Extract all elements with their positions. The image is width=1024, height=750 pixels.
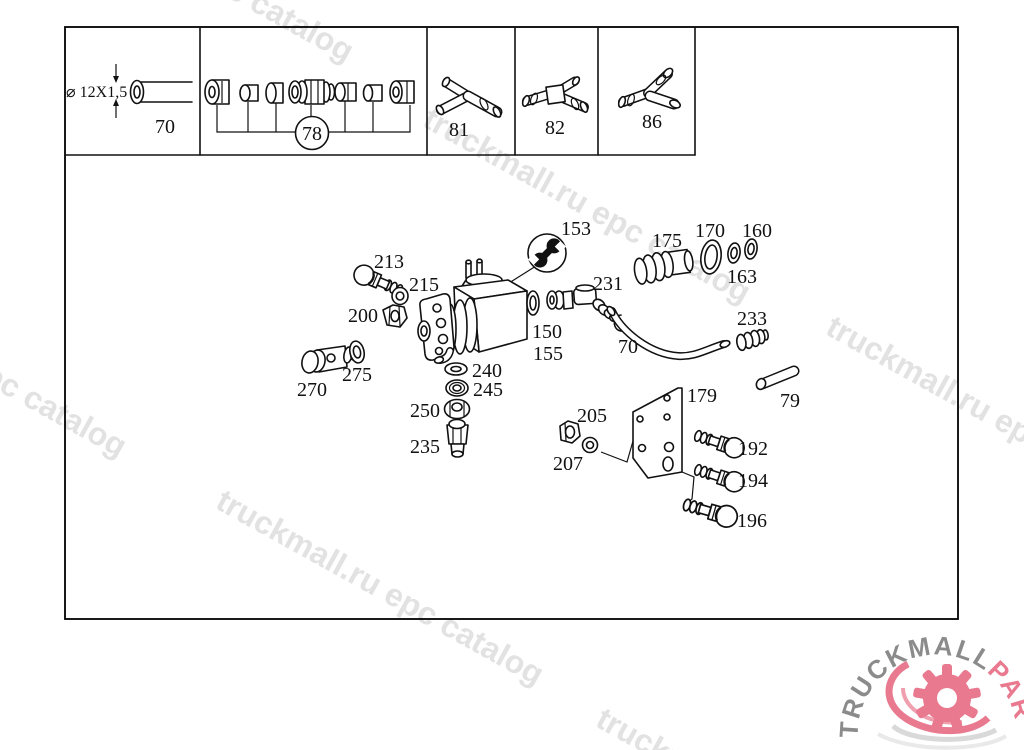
callout-250: 250 [410,400,440,422]
part-196-bolt: 196 [681,494,767,532]
part-170-o-ring: 170 [695,220,725,275]
callout-86: 86 [642,111,662,133]
callout-205: 205 [577,405,607,427]
callout-213: 213 [374,251,404,273]
callout-79: 79 [780,390,800,412]
callout-155: 155 [533,343,563,365]
part-245-ring: 245 [446,379,503,401]
callout-78: 78 [302,123,322,145]
part-233-fitting [736,329,770,351]
part-200-nut: 200 [348,305,407,327]
truckmall-logo: TRUCKMALLPARTS [0,0,1024,748]
panel-70-pipe-dimension: ⌀ 12X1,5 70 [66,64,192,138]
panel-82-tee-fitting: 82 [521,76,589,139]
part-194-bolt: 194 [692,460,768,495]
callout-231: 231 [593,273,623,295]
part-79-tube: 79 [755,371,800,412]
dimension-label: ⌀ 12X1,5 [66,84,127,101]
part-175-stepped-fitting [632,248,694,285]
part-205-nut: 205 [560,405,607,443]
part-179-bracket: 179 [601,385,717,503]
callout-235: 235 [410,436,440,458]
pump-body-150-155: 150 155 [418,259,563,365]
callout-179: 179 [687,385,717,407]
callout-150: 150 [532,321,562,343]
parts-catalog-page: truckmall.ru epc catalog truckmall.ru ep… [0,0,1024,750]
exploded-parts-diagram: ⌀ 12X1,5 70 [0,0,1024,750]
callout-245: 245 [473,379,503,401]
part-207-washer: 207 [553,438,598,476]
callout-275: 275 [342,364,372,386]
callout-200: 200 [348,305,378,327]
callout-153: 153 [561,218,591,240]
callout-192: 192 [738,438,768,460]
callout-175: 175 [652,230,682,252]
callout-233: 233 [737,308,767,330]
part-160-o-ring: 160 [742,220,772,260]
callout-194: 194 [738,470,768,492]
callout-270: 270 [297,379,327,401]
callout-207: 207 [553,453,583,475]
callout-160: 160 [742,220,772,242]
callout-70: 70 [618,336,638,358]
callout-170: 170 [695,220,725,242]
panel-81-cross-fitting: 81 [435,76,502,141]
callout-215: 215 [409,274,439,296]
wrench-symbol-153: 153 [509,218,591,283]
panel-86-wye-fitting: 86 [617,67,681,133]
callout-70-panel: 70 [155,116,175,138]
svg-text:TRUCKMALLPARTS: TRUCKMALLPARTS [0,0,1024,738]
part-250-nut: 250 [410,400,470,423]
callout-163: 163 [727,266,757,288]
callout-81: 81 [449,119,469,141]
part-192-bolt: 192 [692,426,768,461]
panel-78-fitting-set: 78 [205,80,414,150]
callout-82: 82 [545,117,565,139]
gear-icon [913,664,982,732]
logo-brand-secondary: PARTS [0,0,1024,723]
part-235-fitting: 235 [410,420,468,459]
callout-196: 196 [737,510,767,532]
part-70-hose: 70 [606,305,731,358]
